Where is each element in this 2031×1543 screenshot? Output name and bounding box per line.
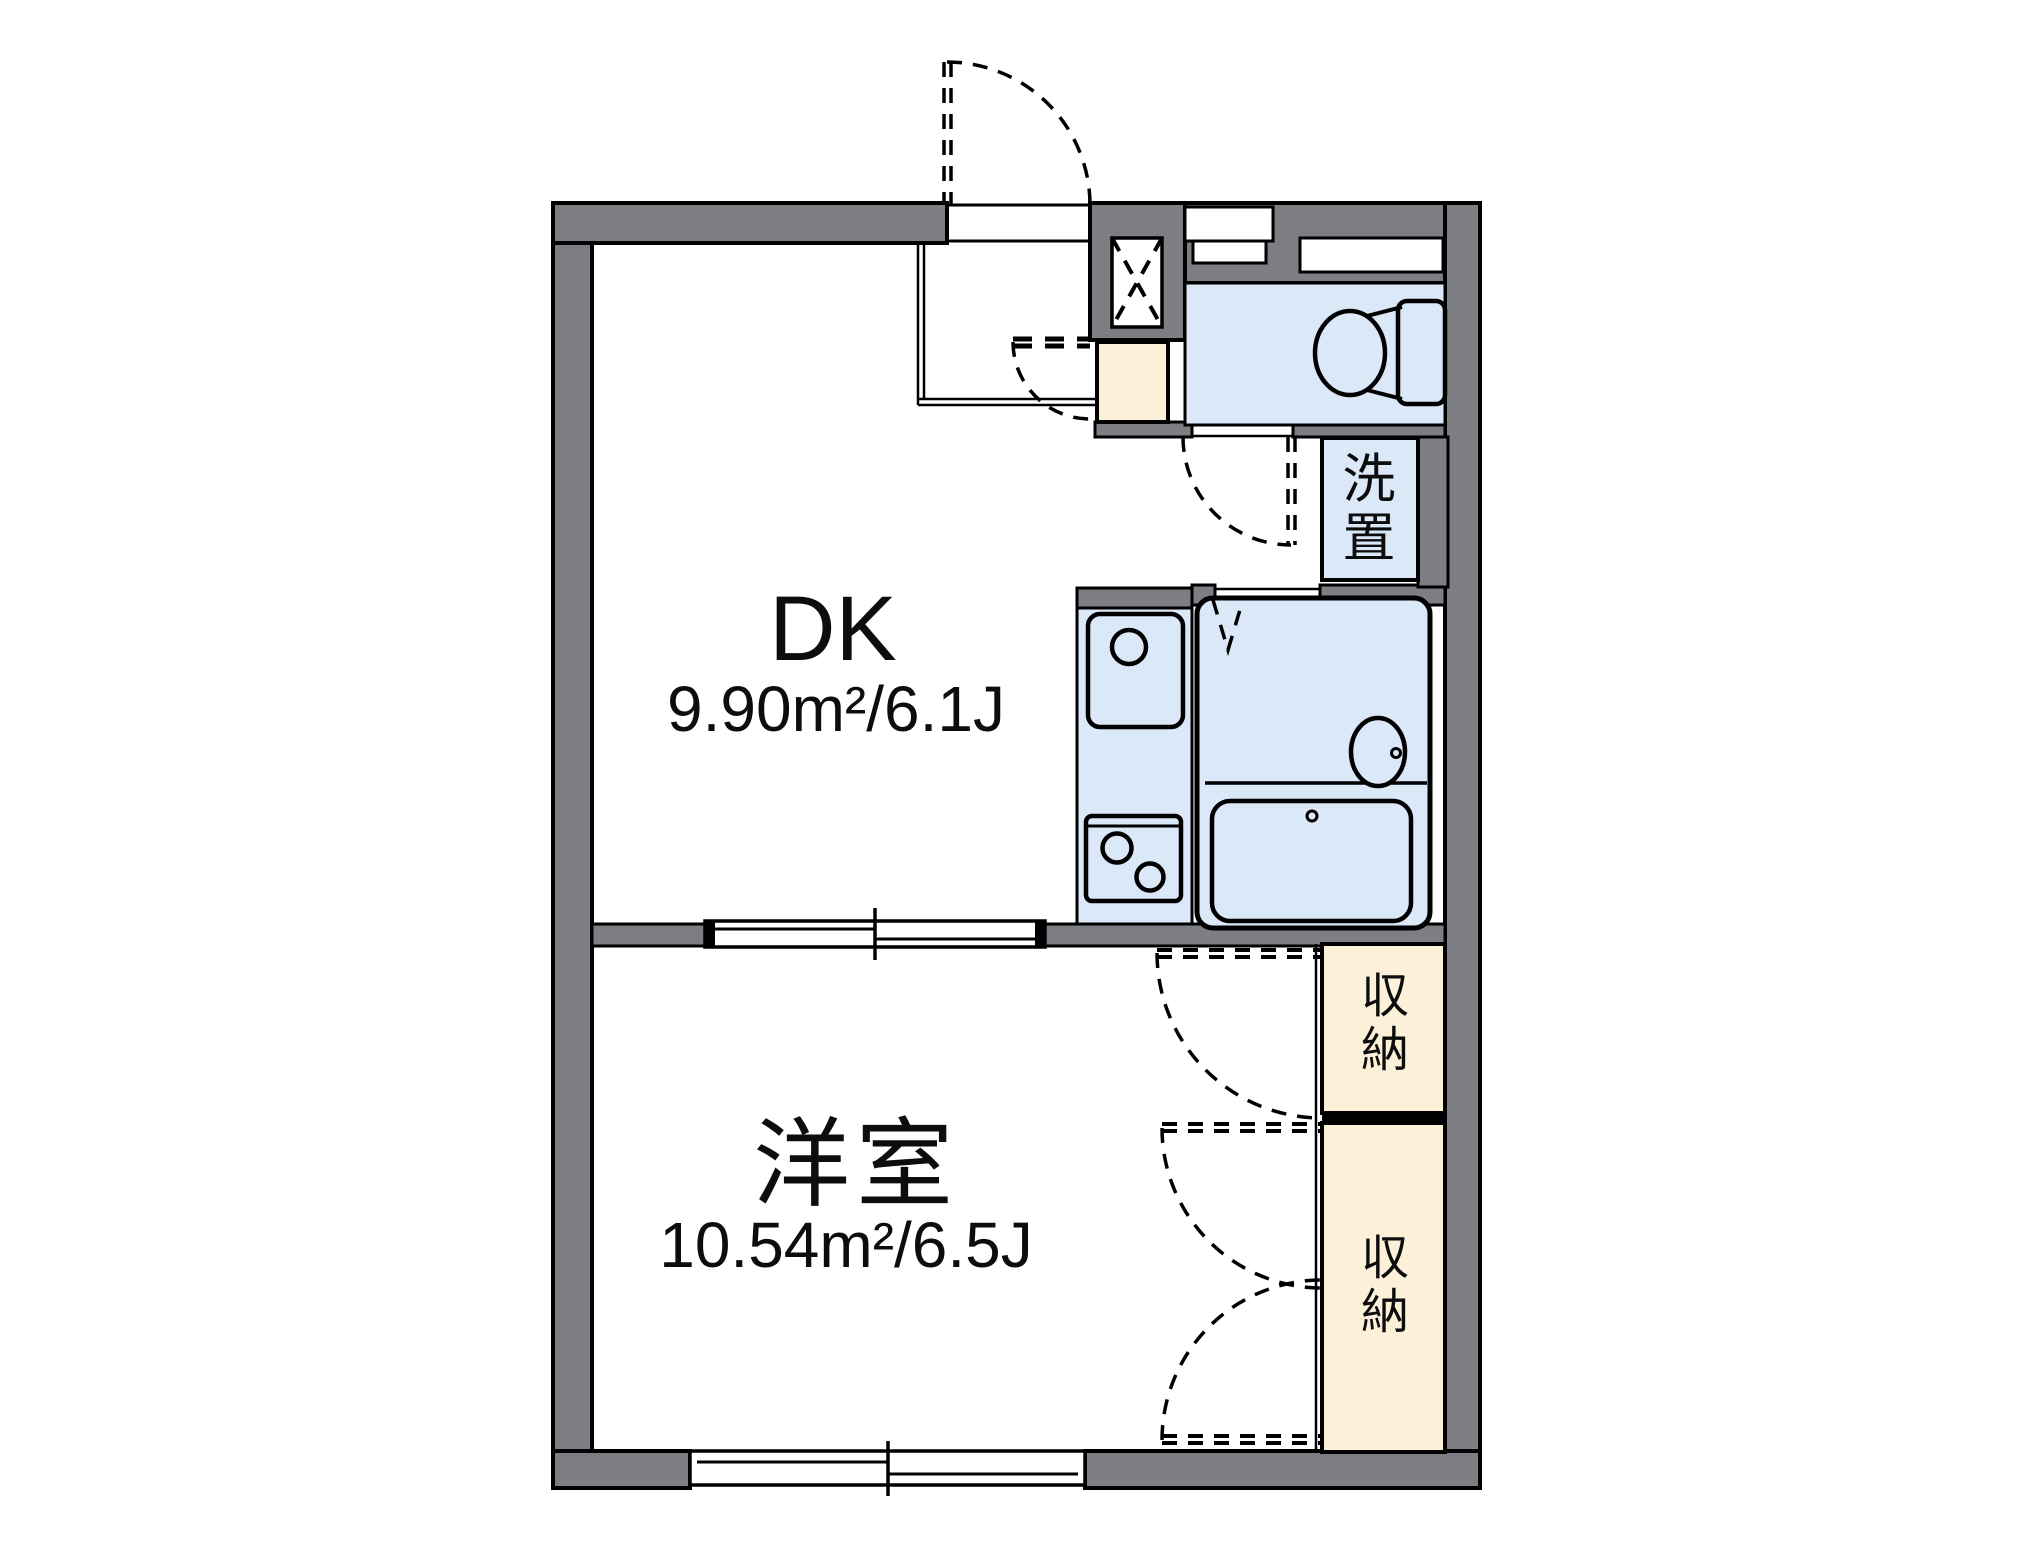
wall-bottom-right bbox=[1085, 1451, 1480, 1488]
kitchen-counter-edge bbox=[1077, 588, 1192, 608]
entrance-porch-step-lower bbox=[1193, 241, 1266, 263]
closet-upper-door-swing-icon bbox=[1157, 953, 1322, 1118]
wall-left bbox=[553, 203, 592, 1488]
sliding-door bbox=[705, 908, 1045, 960]
wall-right bbox=[1445, 203, 1480, 1488]
kitchen-faucet-icon bbox=[1112, 630, 1146, 664]
sliding-door-end-cap bbox=[705, 921, 715, 947]
toilet-tank-icon bbox=[1398, 301, 1445, 404]
toilet-window bbox=[1300, 238, 1443, 272]
closet-lower-door-swing-icon bbox=[1162, 1280, 1322, 1440]
bedroom-area-label: 10.54m²/6.5J bbox=[659, 1209, 1033, 1281]
toilet-bowl-icon bbox=[1315, 311, 1385, 395]
stove-burner-icon bbox=[1137, 864, 1164, 891]
closet-lower-label: 収 bbox=[1361, 1232, 1409, 1285]
closets: 収 納 収 納 bbox=[1157, 944, 1445, 1452]
pipe-space bbox=[1112, 238, 1162, 327]
washbasin-icon bbox=[1351, 718, 1405, 786]
closet-lower-door-swing-icon bbox=[1162, 1128, 1322, 1288]
dk-area-label: 9.90m²/6.1J bbox=[667, 673, 1005, 745]
bottom-window bbox=[690, 1441, 1085, 1496]
entrance-porch-step bbox=[1185, 207, 1273, 241]
floor-plan: 洗 置 収 納 収 bbox=[0, 0, 2031, 1543]
wall-beside-washer bbox=[1418, 437, 1448, 587]
genkan-step-floor bbox=[1097, 342, 1168, 422]
washer-space-label: 洗 bbox=[1343, 450, 1396, 509]
wall-partition-left bbox=[592, 924, 705, 946]
closet-lower-label: 納 bbox=[1361, 1286, 1409, 1339]
entrance-door-swing-icon bbox=[947, 62, 1090, 205]
wall-top-left bbox=[553, 203, 947, 243]
stove-burner-icon bbox=[1103, 834, 1132, 863]
washer-space: 洗 置 bbox=[1322, 438, 1418, 580]
washer-space-label: 置 bbox=[1343, 509, 1396, 568]
toilet-door-swing-icon bbox=[1183, 437, 1291, 545]
bedroom-label: 洋室 bbox=[753, 1110, 959, 1219]
wall-bottom-left bbox=[553, 1451, 690, 1488]
bathtub-icon bbox=[1212, 801, 1411, 921]
dk-label: DK bbox=[769, 578, 897, 680]
kitchen bbox=[1077, 588, 1192, 924]
floorplan-page: 洗 置 収 納 収 bbox=[0, 0, 2031, 1543]
bathroom bbox=[1197, 589, 1430, 928]
wall-below-genkan-step bbox=[1095, 422, 1192, 437]
closet-upper-label: 納 bbox=[1361, 1024, 1409, 1077]
sliding-door-end-cap bbox=[1035, 921, 1045, 947]
kitchen-stove-icon bbox=[1086, 816, 1181, 901]
hall-door-swing-icon bbox=[1013, 342, 1090, 419]
closet-upper-label: 収 bbox=[1361, 970, 1409, 1023]
